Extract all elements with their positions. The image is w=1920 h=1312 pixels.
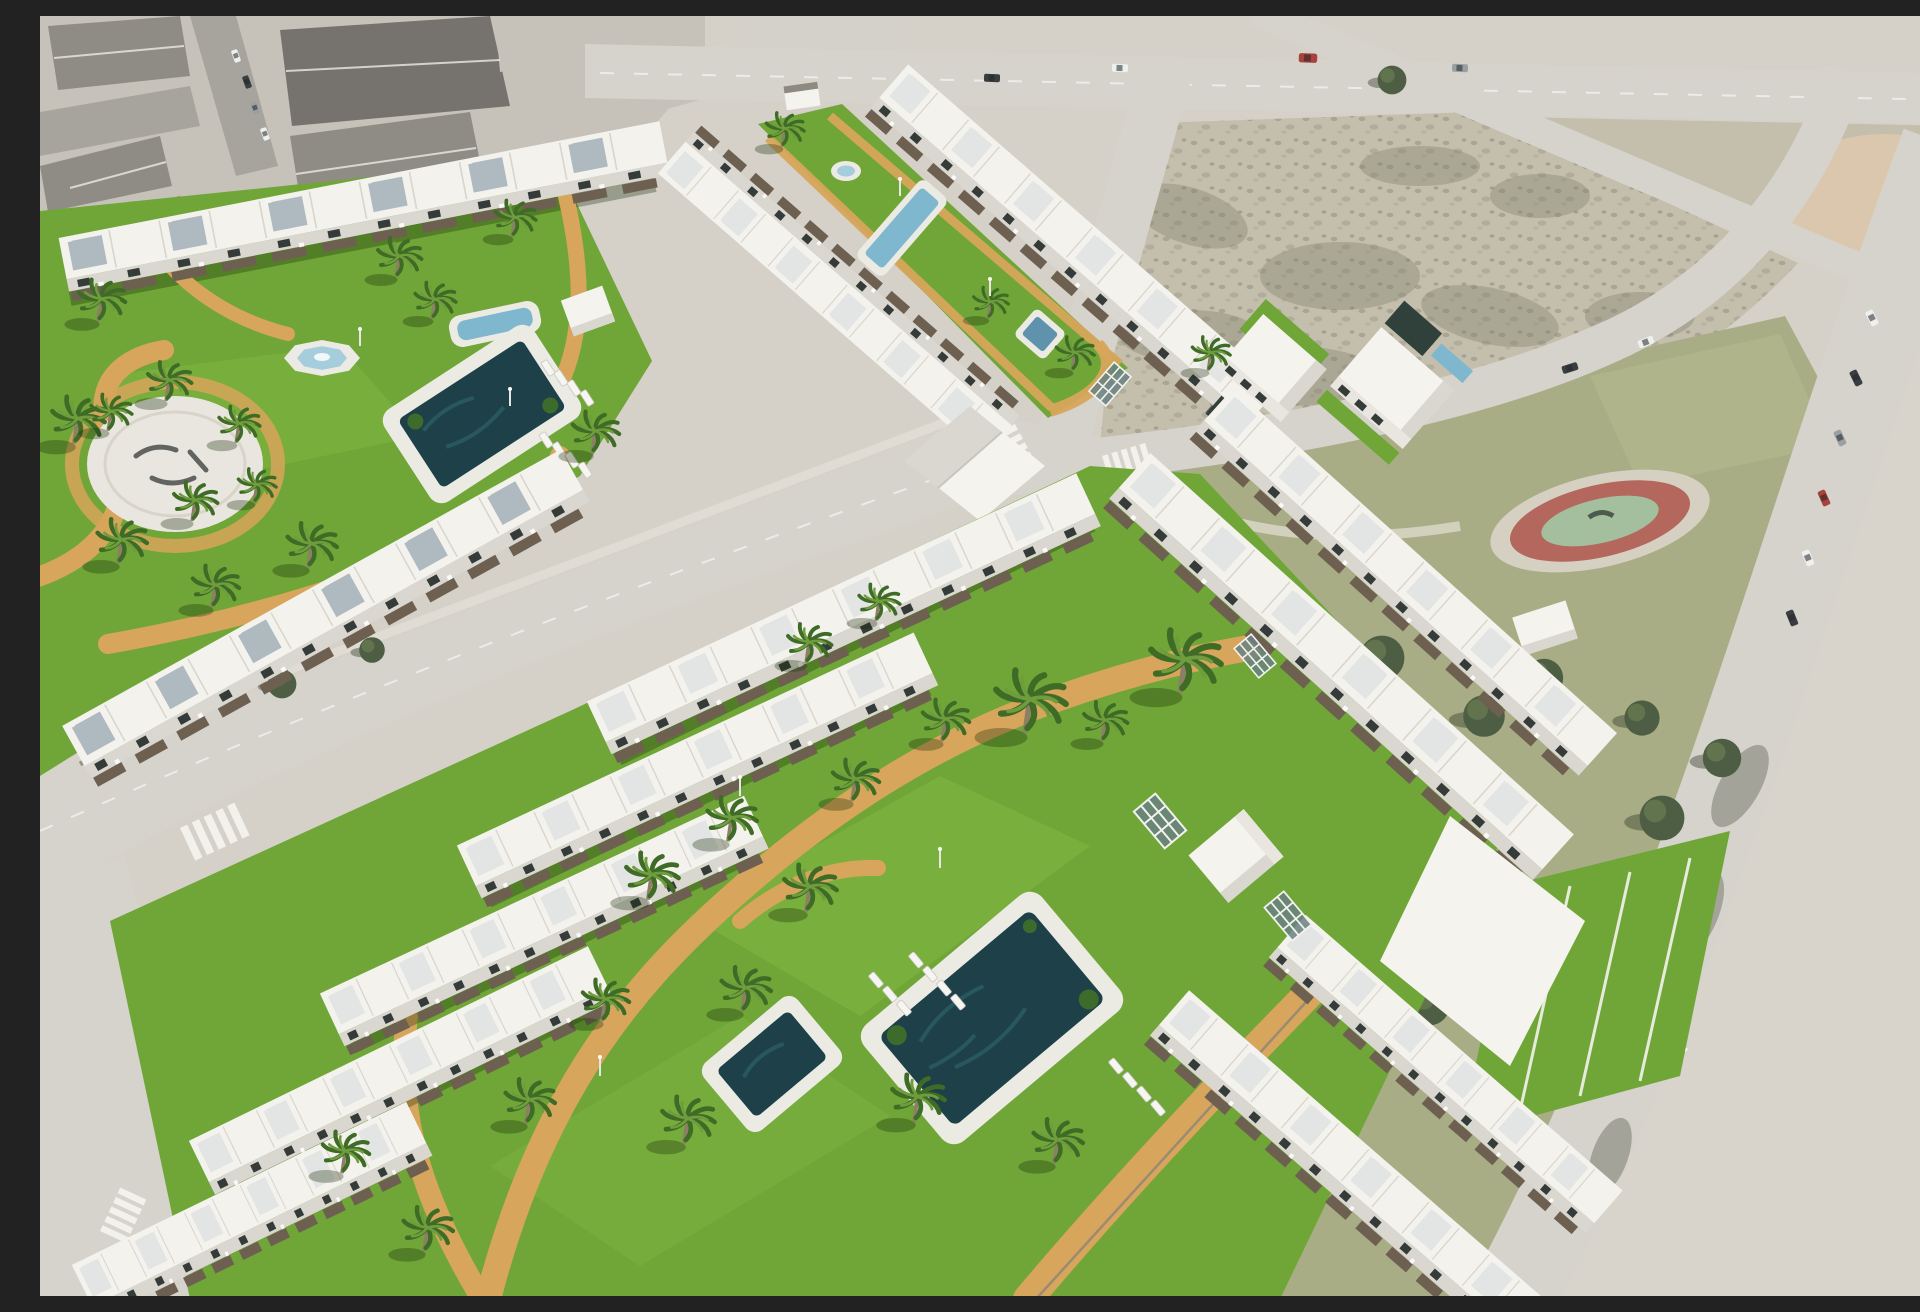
strip-hut xyxy=(783,82,820,110)
car-red-van xyxy=(1299,53,1318,63)
strip-fountain xyxy=(831,161,861,181)
car xyxy=(984,74,1000,83)
car xyxy=(1112,64,1128,73)
aerial-render xyxy=(40,16,1920,1296)
car xyxy=(1452,64,1468,73)
fountain-octagon xyxy=(284,340,360,376)
